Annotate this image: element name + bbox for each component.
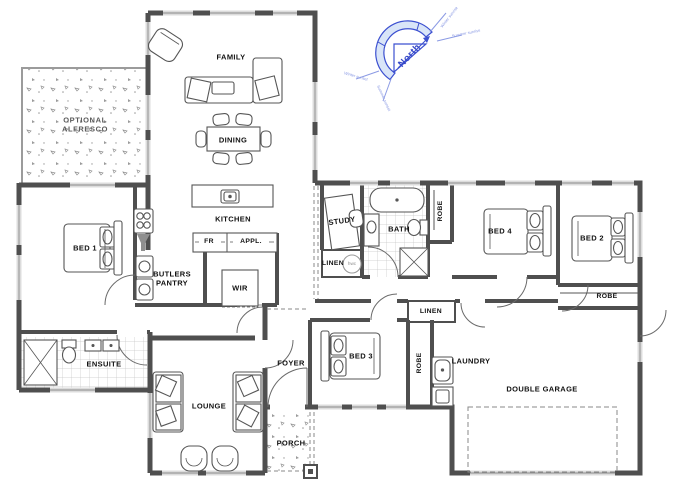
label-laundry: LAUNDRY — [452, 356, 491, 365]
label-butlers-pantry: BUTLERS PANTRY — [153, 270, 191, 289]
label-dining: DINING — [219, 135, 247, 144]
label-kitchen: KITCHEN — [215, 214, 251, 223]
label-family: FAMILY — [217, 52, 246, 61]
label-robe-bed3: ROBE — [416, 352, 424, 373]
label-wir: WIR — [232, 283, 248, 292]
label-bath: BATH — [388, 224, 410, 233]
label-robe-bath: ROBE — [437, 200, 445, 221]
garage-side-door-arc — [640, 310, 666, 336]
label-bed1: BED 1 — [73, 243, 97, 252]
laundry-fixtures — [432, 357, 453, 406]
bed1-door-arc — [105, 275, 135, 305]
label-hwc: hwc — [348, 261, 356, 267]
bathtub — [370, 188, 424, 212]
bath-vanity — [364, 214, 379, 246]
bed3-door-arc — [371, 294, 397, 320]
kitchen-island — [192, 185, 273, 207]
label-fridge: FR — [204, 238, 214, 246]
bath-shower — [400, 248, 428, 276]
label-bed3: BED 3 — [349, 351, 373, 360]
porch-post-core — [308, 469, 313, 474]
label-robe-bed2: ROBE — [596, 293, 617, 301]
wir-door-arc — [237, 307, 263, 333]
cooktop — [134, 209, 153, 233]
label-bed2: BED 2 — [580, 233, 604, 242]
floor-plan: OPTIONAL ALFRESCO FAMILY DINING KITCHEN … — [0, 0, 690, 493]
label-garage: DOUBLE GARAGE — [506, 384, 577, 393]
garage-hall-door-arc — [461, 303, 485, 327]
label-foyer: FOYER — [277, 358, 305, 367]
label-bed4: BED 4 — [488, 226, 512, 235]
label-linen-hwc: LINEN — [322, 260, 344, 268]
label-lounge: LOUNGE — [192, 401, 226, 410]
garage-car-space — [468, 407, 617, 472]
label-linen-hall: LINEN — [420, 308, 442, 316]
label-ensuite: ENSUITE — [87, 359, 122, 368]
family-sofa — [185, 58, 282, 103]
label-optional-alfresco: OPTIONAL ALFRESCO — [62, 116, 108, 135]
label-appliances: APPL. — [240, 238, 262, 246]
lounge-sofas — [153, 372, 263, 471]
family-armchair — [146, 26, 185, 64]
label-porch: PORCH — [277, 438, 306, 447]
entry-door-arc — [268, 368, 307, 407]
bath-toilet — [408, 220, 429, 236]
